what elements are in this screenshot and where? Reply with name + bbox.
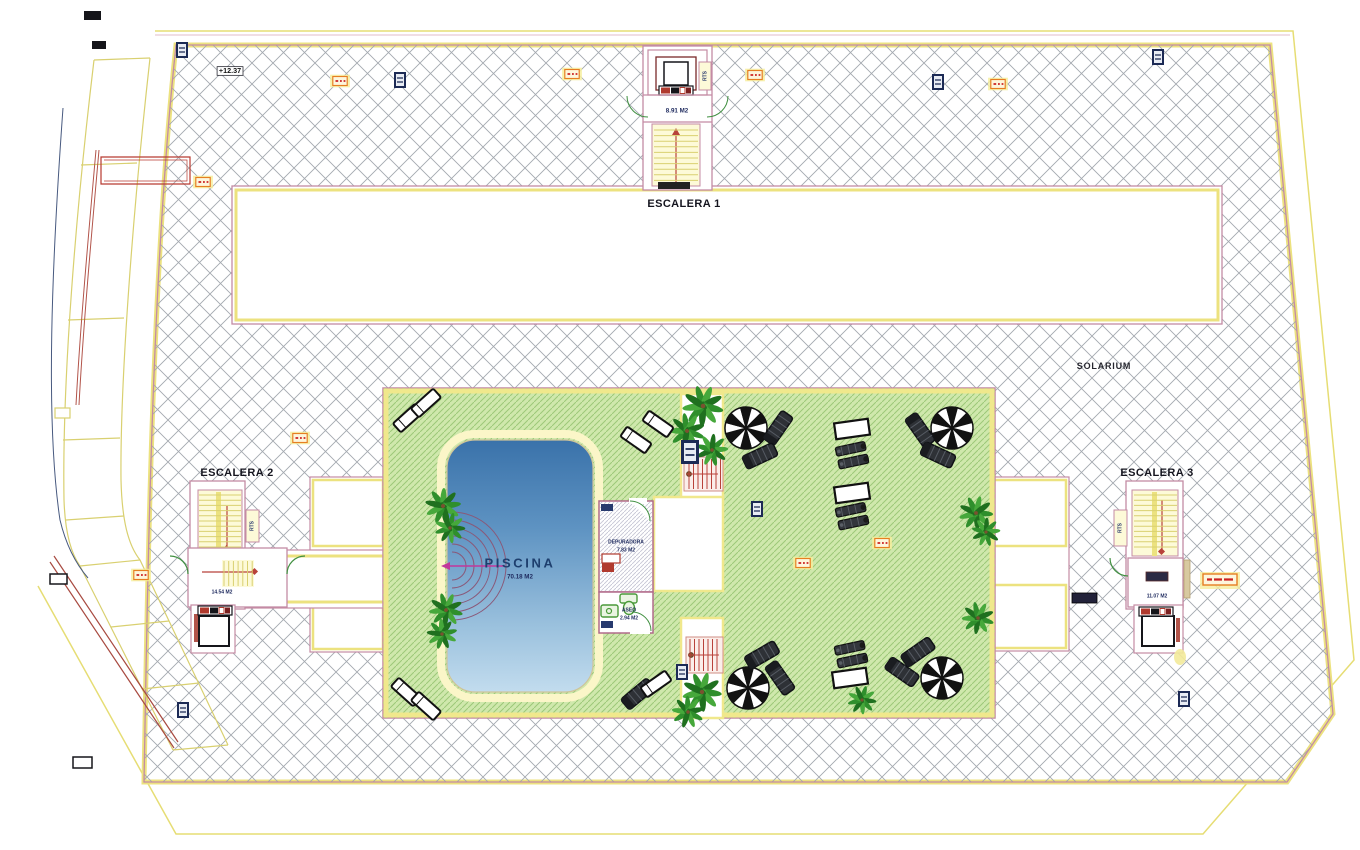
plan-tag: [1146, 572, 1168, 581]
rts-label-1: RTS: [702, 71, 708, 81]
drain-marker-icon: [1179, 692, 1189, 706]
light-marker-icon: [330, 75, 350, 88]
plan-tag: [1072, 593, 1097, 603]
table-icon: [834, 483, 870, 504]
sink-icon: [601, 605, 618, 617]
light-marker-icon: [562, 68, 582, 81]
escalera2-area-label: 14.54 M2: [212, 589, 233, 595]
drain-marker-icon: [1153, 50, 1163, 64]
light-marker-icon: [745, 69, 765, 82]
piscina-area-label: 70.18 M2: [507, 574, 533, 581]
escalera2-label: ESCALERA 2: [200, 467, 273, 479]
roof-hatch-marker: [84, 11, 101, 20]
roof-hatch-marker: [92, 41, 106, 49]
plan-drawing: [0, 0, 1360, 850]
pump: [602, 554, 620, 563]
elevator-icon: [1139, 607, 1173, 616]
courtyard-opening: [232, 186, 1222, 324]
elevator-icon: [659, 86, 693, 95]
escalera1-area-label: 8.91 M2: [666, 108, 688, 115]
pump: [602, 563, 614, 572]
escalera3-label: ESCALERA 3: [1120, 467, 1193, 479]
elevation-tag: +12.37: [217, 66, 244, 75]
table-icon: [834, 419, 870, 440]
escalera3-area-label: 11.07 M2: [1147, 593, 1168, 599]
rts-label-2: RTS: [249, 521, 255, 531]
drain-marker-icon: [752, 502, 762, 516]
floor-plan: ESCALERA 1 ESCALERA 2 ESCALERA 3 SOLARIU…: [0, 0, 1360, 850]
light-marker-icon: [872, 537, 892, 550]
drain-marker-icon: [933, 75, 943, 89]
light-marker-icon: [290, 432, 310, 445]
drain-marker-icon: [178, 703, 188, 717]
table-icon: [832, 668, 868, 689]
terrace-stair-south: [686, 637, 723, 673]
plaza-center: [654, 497, 723, 591]
escalera1-label: ESCALERA 1: [647, 198, 720, 210]
drain-marker-icon: [683, 442, 698, 463]
light-marker-icon: [988, 78, 1008, 91]
depuradora-label: DEPURADORA: [608, 539, 644, 545]
rts-label-3: RTS: [1117, 523, 1123, 533]
aseo-area-label: 2.94 M2: [620, 615, 638, 621]
depuradora-area-label: 7.83 M2: [617, 547, 635, 553]
light-marker-icon: [193, 176, 213, 189]
piscina-label: PISCINA: [485, 556, 556, 571]
drain-marker-icon: [395, 73, 405, 87]
aseo-label: ASEO: [622, 607, 636, 613]
solarium-label: SOLARIUM: [1077, 361, 1131, 371]
elevator-icon: [198, 606, 232, 615]
light-marker-icon: [131, 569, 151, 582]
light-marker-icon: [793, 557, 813, 570]
vestibule: [1128, 558, 1183, 607]
roof-access-marker: [50, 574, 67, 584]
orange-badge: [1200, 572, 1240, 589]
drain-marker-icon: [677, 665, 687, 679]
depuradora-room: [599, 498, 653, 592]
drain-marker-icon: [177, 43, 187, 57]
roof-access-marker: [73, 757, 92, 768]
aseo-room: [599, 592, 653, 634]
